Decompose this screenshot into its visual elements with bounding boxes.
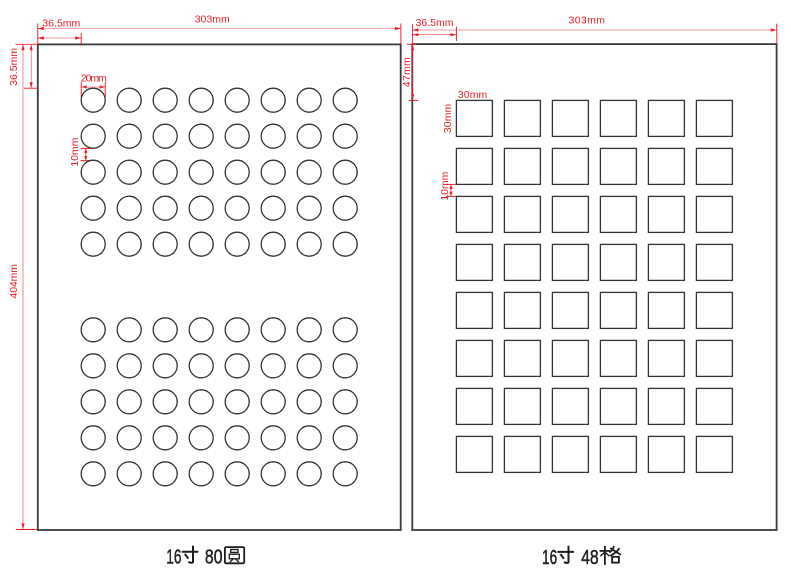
svg-text:36.5mm: 36.5mm: [8, 48, 20, 86]
svg-text:47mm: 47mm: [401, 57, 413, 87]
svg-text:16: 16: [166, 546, 181, 569]
svg-text:30mm: 30mm: [442, 103, 454, 133]
svg-text:20mm: 20mm: [81, 73, 107, 85]
svg-text:10mm: 10mm: [69, 137, 81, 166]
svg-text:404mm: 404mm: [8, 264, 20, 299]
svg-text:80: 80: [205, 546, 223, 569]
svg-text:303mm: 303mm: [569, 14, 606, 26]
svg-text:48: 48: [581, 546, 599, 569]
svg-text:36.5mm: 36.5mm: [42, 18, 80, 30]
svg-text:303mm: 303mm: [195, 14, 230, 26]
svg-text:16: 16: [542, 546, 557, 569]
svg-text:30mm: 30mm: [458, 89, 488, 101]
svg-text:10mm: 10mm: [439, 171, 451, 200]
svg-text:36.5mm: 36.5mm: [416, 17, 454, 29]
